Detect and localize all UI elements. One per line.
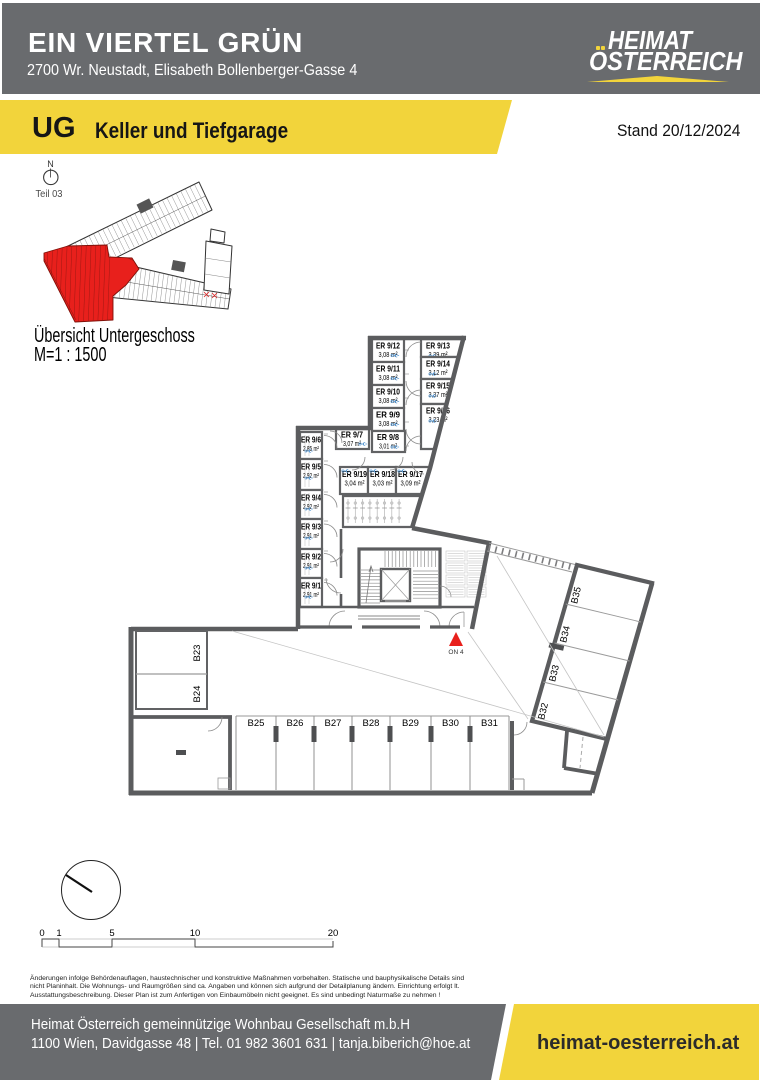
svg-text:B27: B27 — [325, 718, 342, 729]
svg-text:20: 20 — [328, 928, 339, 939]
svg-text:1: 1 — [56, 928, 61, 939]
svg-text:5: 5 — [109, 928, 114, 939]
svg-text:3,12 m²: 3,12 m² — [429, 368, 448, 377]
svg-text:3,08 m²: 3,08 m² — [379, 350, 398, 359]
svg-text:10: 10 — [190, 928, 201, 939]
svg-text:B28: B28 — [363, 718, 380, 729]
svg-text:3,01 m²: 3,01 m² — [379, 442, 397, 451]
svg-text:B23: B23 — [192, 645, 203, 662]
svg-text:3,07 m²: 3,07 m² — [343, 439, 361, 448]
svg-text:3,08 m²: 3,08 m² — [379, 373, 398, 382]
svg-text:3,08 m²: 3,08 m² — [379, 419, 398, 428]
svg-text:3,09 m²: 3,09 m² — [401, 479, 421, 488]
svg-text:B25: B25 — [248, 718, 265, 729]
svg-text:Teil 03: Teil 03 — [36, 189, 63, 200]
svg-text:3,37 m²: 3,37 m² — [429, 390, 448, 399]
svg-text:B30: B30 — [442, 718, 459, 729]
svg-text:3,04 m²: 3,04 m² — [345, 479, 365, 488]
svg-text:N: N — [47, 159, 54, 169]
svg-text:ON 4: ON 4 — [448, 649, 464, 656]
svg-text:B29: B29 — [402, 718, 419, 729]
svg-text:B31: B31 — [481, 718, 498, 729]
svg-text:B24: B24 — [192, 686, 203, 703]
svg-text:0: 0 — [39, 928, 44, 939]
svg-text:B26: B26 — [287, 718, 304, 729]
svg-text:3,08 m²: 3,08 m² — [379, 396, 398, 405]
svg-text:3,03 m²: 3,03 m² — [373, 479, 393, 488]
